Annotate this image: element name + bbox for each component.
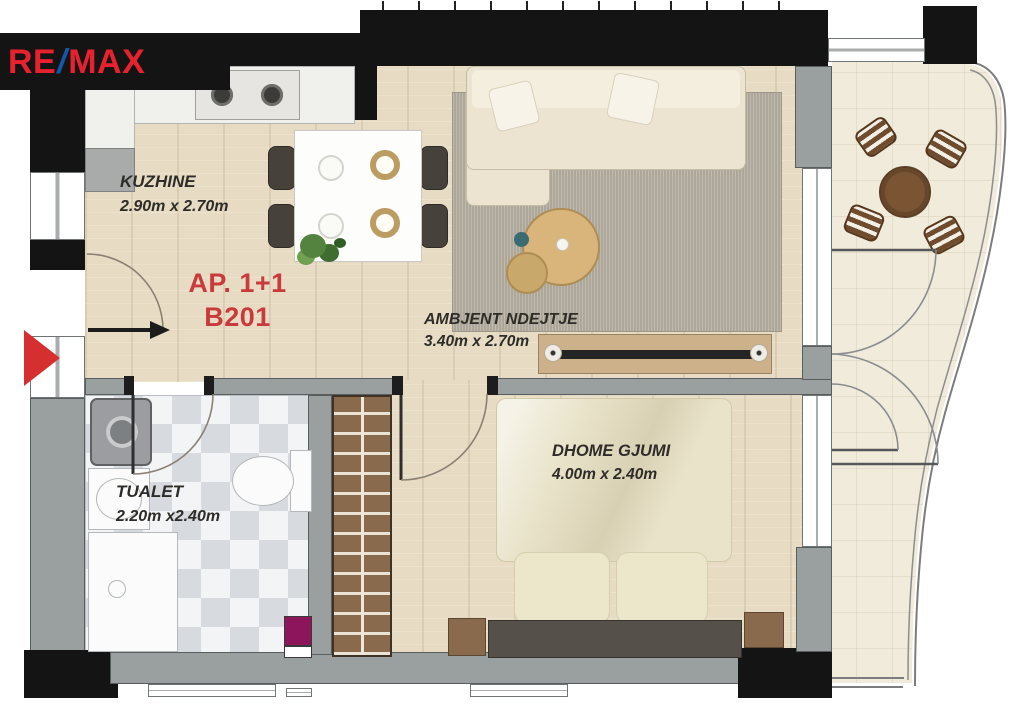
- kitchen-label: KUZHINE 2.90m x 2.70m: [120, 170, 229, 218]
- logo-max: MAX: [68, 43, 145, 81]
- top-wall-right: [360, 10, 828, 66]
- dining-chair-2: [268, 204, 296, 248]
- bathroom-shelf-lower: [284, 646, 312, 658]
- right-wall-stub-mid: [802, 346, 832, 380]
- toilet-bowl: [232, 456, 294, 506]
- dining-chair-1: [268, 146, 296, 190]
- plate-2: [318, 213, 344, 239]
- kitchen-dims: 2.90m x 2.70m: [120, 195, 229, 218]
- bathroom-door-post-left: [124, 376, 134, 395]
- bottom-window-2: [286, 688, 312, 697]
- unit-type: AP. 1+1: [155, 266, 320, 300]
- balcony-top-railing: [828, 38, 925, 62]
- coffee-table-small: [506, 252, 548, 294]
- kitchen-wall-stub: [353, 66, 377, 120]
- nightstand-right: [744, 612, 784, 648]
- left-wall-window: [30, 172, 85, 240]
- coffee-cup-white: [556, 238, 569, 251]
- sofa-pillow-2: [606, 72, 661, 127]
- living-balcony-window: [802, 168, 832, 346]
- plate-1: [318, 155, 344, 181]
- bedroom-name: DHOME GJUMI: [552, 440, 670, 464]
- washing-machine-door: [106, 416, 138, 448]
- balcony-pillar: [923, 6, 977, 64]
- left-wall-block: [30, 240, 85, 270]
- bathroom-door-post-right: [204, 376, 214, 395]
- bedroom-door-post-right: [487, 376, 498, 395]
- bottom-window-3: [470, 684, 568, 697]
- entry-sidelight-window: [30, 336, 85, 398]
- wardrobe: [332, 395, 392, 657]
- shower-drain: [108, 580, 126, 598]
- placemat-2: [370, 208, 400, 238]
- bathroom-label: TUALET 2.20m x2.40m: [116, 480, 220, 528]
- tv: [558, 350, 754, 359]
- left-wall-bathroom: [30, 398, 85, 654]
- bed-headboard: [488, 620, 742, 658]
- right-wall-pillar-bottom: [796, 547, 832, 652]
- coffee-cup-teal: [514, 232, 529, 247]
- table-plant: [300, 234, 326, 258]
- kitchen-name: KUZHINE: [120, 170, 229, 195]
- bed-pillow-right: [616, 552, 708, 624]
- dining-chair-4: [420, 204, 448, 248]
- bottom-right-wall-corner: [738, 648, 832, 698]
- bedroom-door-post-left: [392, 376, 403, 395]
- unit-number: B201: [155, 300, 320, 334]
- speaker-right: [750, 344, 768, 362]
- bed-pillow-left: [514, 552, 610, 624]
- bedroom-label: DHOME GJUMI 4.00m x 2.40m: [552, 440, 670, 486]
- bedroom-balcony-window: [802, 395, 832, 547]
- living-label: AMBJENT NDEJTJE 3.40m x 2.70m: [424, 308, 578, 354]
- hall-wall: [212, 378, 400, 395]
- bedroom-dims: 4.00m x 2.40m: [552, 464, 670, 486]
- living-name: AMBJENT NDEJTJE: [424, 308, 578, 331]
- living-dims: 3.40m x 2.70m: [424, 331, 578, 353]
- bottom-left-wall-corner: [24, 650, 118, 698]
- right-wall-pillar-top: [795, 66, 832, 168]
- bottom-window-1: [148, 684, 276, 697]
- living-bedroom-wall: [490, 378, 832, 395]
- floor-plan: RE/MAX KUZHINE 2.90m x 2.70m AP. 1+1 B20…: [0, 0, 1024, 727]
- dimension-ticks: [382, 1, 812, 10]
- stove-burner-2: [261, 84, 283, 106]
- bathroom-shelf: [284, 616, 312, 646]
- bathroom-name: TUALET: [116, 480, 220, 505]
- bathroom-dims: 2.20m x2.40m: [116, 505, 220, 528]
- placemat-1: [370, 150, 400, 180]
- balcony-table: [879, 166, 931, 218]
- shower-tray: [88, 532, 178, 652]
- logo-slash-icon: /: [56, 43, 68, 81]
- dining-chair-3: [420, 146, 448, 190]
- logo-re: RE: [8, 43, 56, 81]
- balcony: [820, 0, 1024, 727]
- unit-label: AP. 1+1 B201: [155, 266, 320, 334]
- nightstand-left: [448, 618, 486, 656]
- remax-logo: RE/MAX: [8, 45, 145, 79]
